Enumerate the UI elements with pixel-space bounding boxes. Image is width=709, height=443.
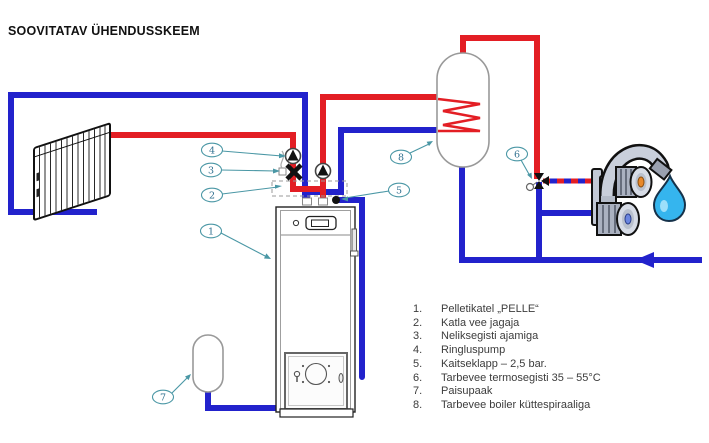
legend-item-5: 5. Kaitseklapp – 2,5 bar. xyxy=(413,358,703,372)
boiler-flange-right xyxy=(319,198,328,205)
legend-item-8: 8. Tarbevee boiler küttespiraaliga xyxy=(413,399,703,413)
connection-scheme-page: 1 2 3 4 5 6 7 8 SOOVITATAV ÜHENDUSSKEEM … xyxy=(0,0,709,443)
pipe-expansion-tank xyxy=(208,389,277,408)
legend-item-4: 4. Ringluspump xyxy=(413,344,703,358)
legend-item-7: 7. Paisupaak xyxy=(413,385,703,399)
cold-knob xyxy=(597,203,639,235)
legend-item-2: 2. Katla vee jagaja xyxy=(413,317,703,331)
callout-4-label: 4 xyxy=(209,146,215,157)
callout-3-label: 3 xyxy=(208,166,214,177)
valve-actuator xyxy=(279,168,286,175)
boiler-flange-left xyxy=(303,198,312,205)
hot-knob-dot xyxy=(638,177,644,187)
page-title: SOOVITATAV ÜHENDUSSKEEM xyxy=(8,24,200,38)
callout-8-label: 8 xyxy=(398,153,404,164)
circulation-pump-icon xyxy=(286,149,301,164)
boiler-door-handle xyxy=(339,374,343,383)
hot-knob xyxy=(616,167,652,197)
boiler-button xyxy=(293,220,298,225)
callout-7-label: 7 xyxy=(160,393,166,404)
boiler-side-lever xyxy=(352,229,357,253)
cold-water-flow-arrow xyxy=(635,252,654,268)
callout-1-label: 1 xyxy=(208,227,214,238)
pellet-boiler xyxy=(276,207,358,417)
callout-6-label: 6 xyxy=(514,150,520,161)
legend-item-3: 3. Neliksegisti ajamiga xyxy=(413,330,703,344)
safety-valve-point xyxy=(332,196,340,204)
legend-item-6: 6. Tarbevee termosegisti 35 – 55°C xyxy=(413,372,703,386)
boiler-base xyxy=(280,409,353,417)
coil-loop-pump-icon xyxy=(316,164,331,179)
water-drop-icon xyxy=(654,176,685,221)
cold-knob-dot xyxy=(625,214,631,224)
radiator xyxy=(34,123,110,220)
actuator-cable xyxy=(281,151,284,168)
thermostat-head xyxy=(527,184,534,191)
expansion-tank xyxy=(193,335,223,392)
legend-item-1: 1. Pelletikatel „PELLE“ xyxy=(413,303,703,317)
legend-list: 1. Pelletikatel „PELLE“ 2. Katla vee jag… xyxy=(413,303,703,413)
callout-5-label: 5 xyxy=(396,186,402,197)
callout-2-label: 2 xyxy=(209,191,215,202)
boiler-door xyxy=(285,353,347,409)
